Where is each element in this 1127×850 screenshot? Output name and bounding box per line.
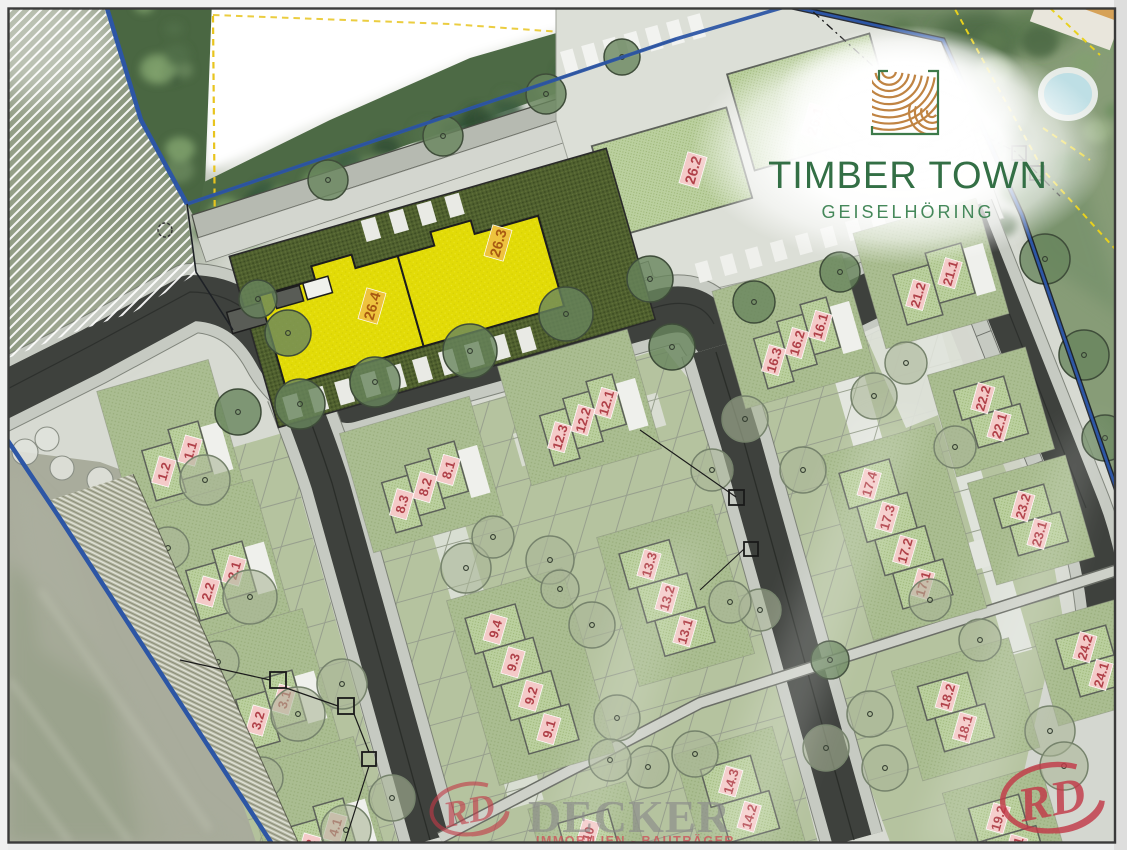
svg-text:TIMBER TOWN: TIMBER TOWN: [768, 155, 1048, 197]
svg-text:GEISELHÖRING: GEISELHÖRING: [821, 202, 994, 222]
